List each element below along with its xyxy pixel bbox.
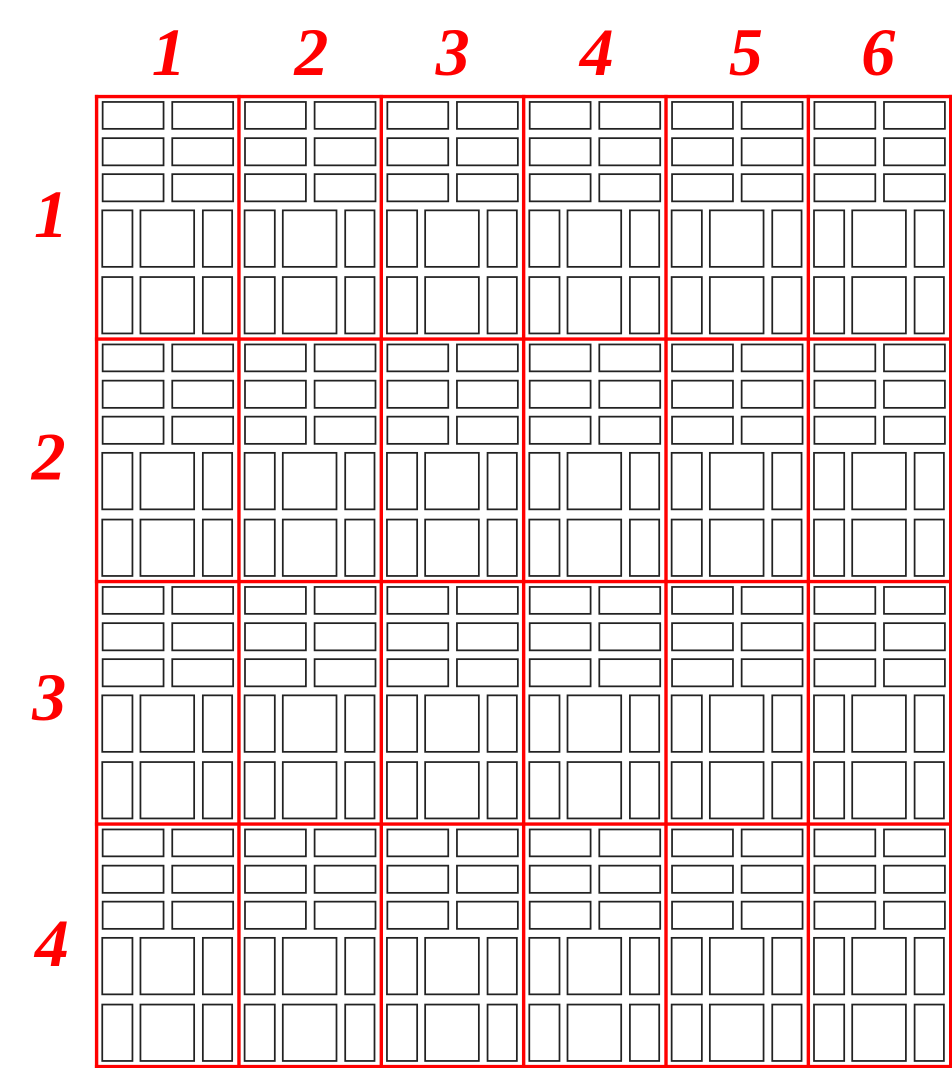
svg-text:3: 3 xyxy=(435,14,470,90)
svg-text:3: 3 xyxy=(31,659,66,735)
svg-text:4: 4 xyxy=(578,14,614,90)
svg-text:6: 6 xyxy=(861,14,895,90)
svg-text:2: 2 xyxy=(31,419,66,495)
svg-text:1: 1 xyxy=(34,176,68,252)
svg-text:4: 4 xyxy=(33,905,69,981)
svg-text:2: 2 xyxy=(293,14,328,90)
svg-text:1: 1 xyxy=(152,14,186,90)
svg-text:5: 5 xyxy=(729,14,763,90)
